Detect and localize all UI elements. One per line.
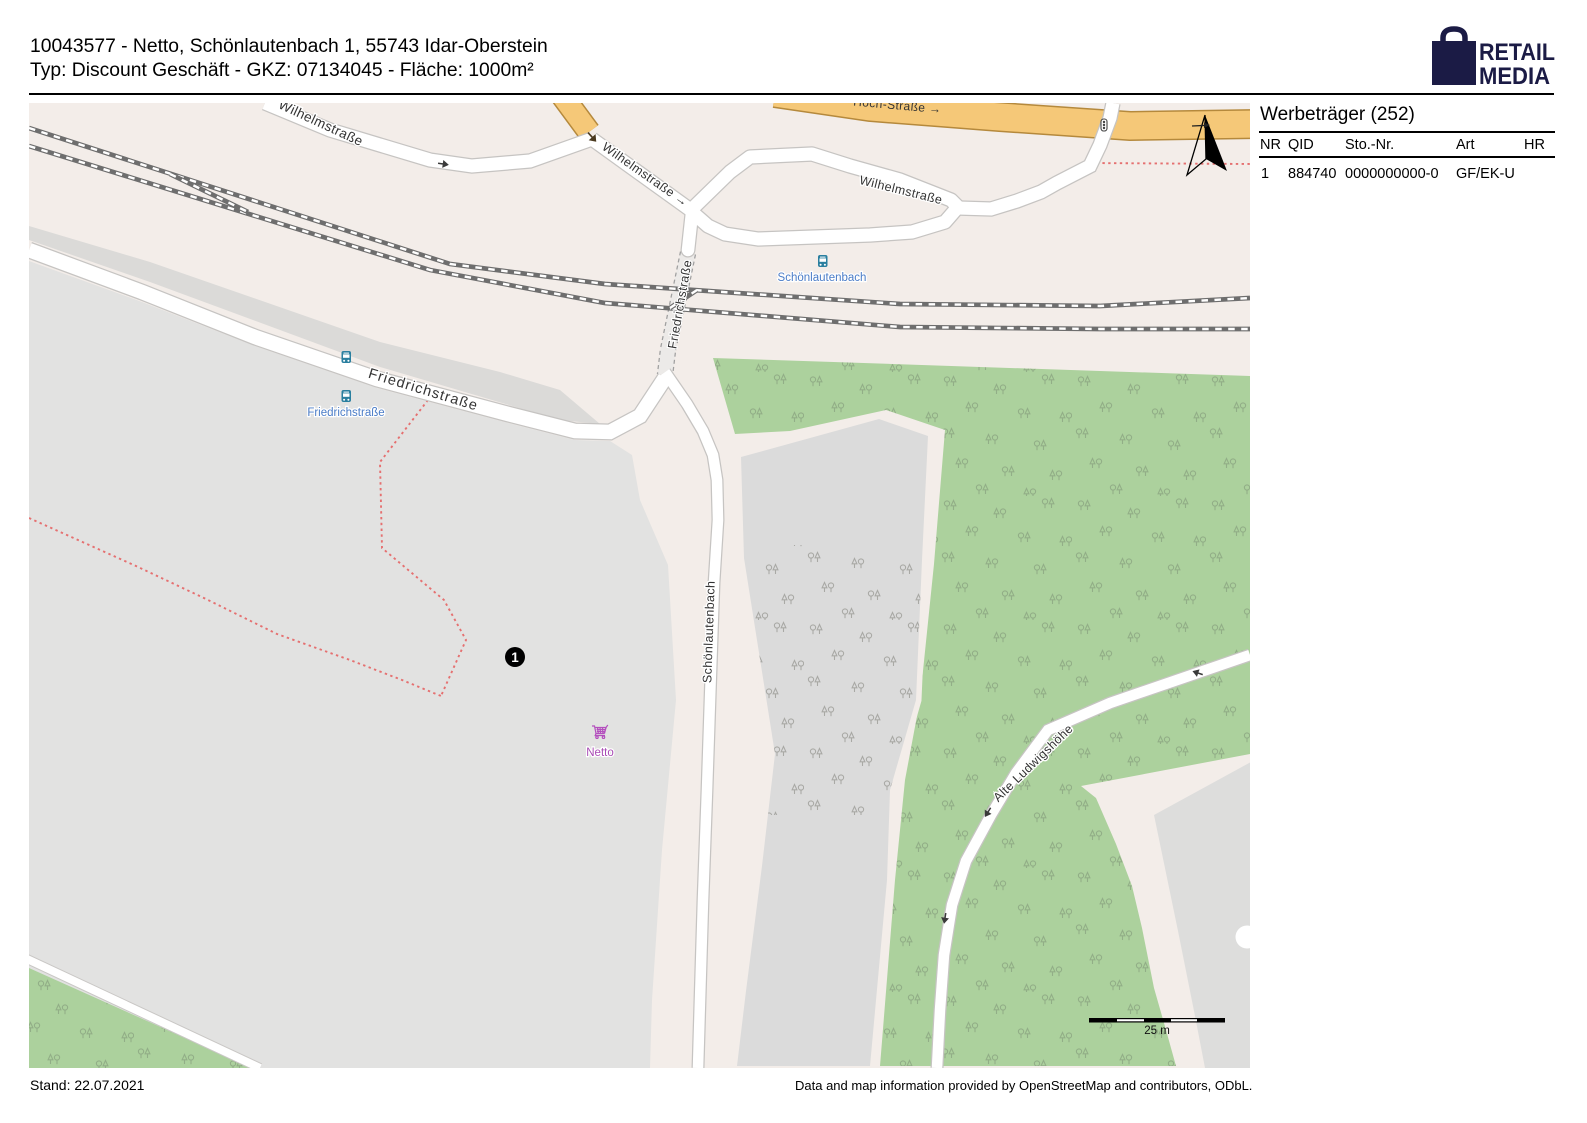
svg-text:Netto: Netto: [586, 747, 614, 759]
svg-text:Friedrichstraße: Friedrichstraße: [307, 407, 384, 419]
svg-text:RETAIL: RETAIL: [1479, 39, 1555, 66]
svg-text:Schönlautenbach: Schönlautenbach: [778, 272, 867, 284]
svg-text:25 m: 25 m: [1144, 1025, 1170, 1037]
svg-text:MEDIA: MEDIA: [1479, 63, 1550, 89]
svg-text:1: 1: [511, 650, 519, 665]
